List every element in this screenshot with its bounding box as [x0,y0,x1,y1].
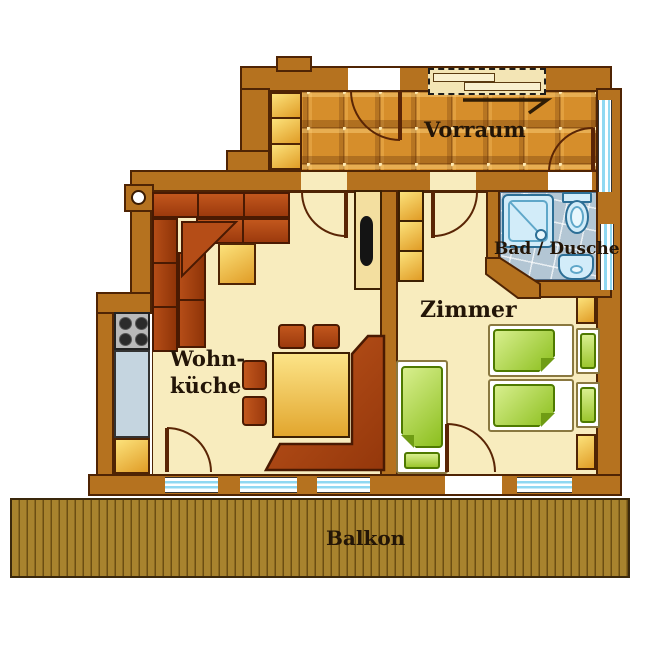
chair-left-1 [242,360,267,390]
duvet-2 [493,384,555,427]
stove-burners [116,314,148,348]
zimmer-label: Zimmer [420,297,517,323]
sofa-cushion [154,264,176,306]
duvet-fold [401,435,414,448]
pillow-1 [580,333,596,369]
sofa-back-top [152,192,290,218]
balcony-deck [10,498,630,578]
bed-head-cabinet-top [576,296,596,324]
sofa-cushion [180,254,204,299]
sofa-seat-left [178,252,206,348]
burner [119,317,132,330]
wall-vorraum-left [240,88,270,154]
bad-dusche-label: Bad / Dusche [494,239,620,259]
sofa-cushion [245,194,288,216]
wall-left-jog [96,292,152,314]
shelf-cell [272,119,300,142]
sofa-cushion [154,220,176,262]
sofa-back-left [152,218,178,352]
wardrobe-panel-left [433,73,495,82]
wall-mid-band [130,170,612,192]
wohnkueche-door-opening [301,172,347,190]
shelf-cell [272,94,300,117]
toilet-bowl [565,200,589,234]
sofa-cushion [198,220,242,242]
balcony-door-window-wohnkueche [165,477,218,493]
duvet-fold [541,413,555,427]
pillow-2 [580,387,596,423]
wohnkueche-label-line1: Wohn- [170,346,245,371]
sofa-cushion [180,301,204,346]
vorraum-shelf [270,92,302,170]
floorplan: Vorraum Bad / Dusche Zimmer Wohn- küche … [0,0,660,660]
tv [360,216,373,266]
bad-door-opening [548,172,592,190]
sink-basin [570,265,583,274]
shelf-cell [400,252,422,280]
chair-top-1 [278,324,306,349]
sofa-seat-top [196,218,290,244]
kitchen-counter [114,350,150,438]
duvet-1 [493,329,555,372]
toilet-bowl-inner [570,206,584,228]
wardrobe-panel-right [464,82,541,91]
kitchen-cabinet [114,438,150,474]
chair-left-2 [242,396,267,426]
stove [114,312,150,350]
balkon-label: Balkon [326,526,405,550]
window-bottom-1 [240,477,297,493]
shelf-cell [400,222,422,250]
zimmer-balcony-door-opening [445,476,502,494]
sofa-cushion [154,308,176,350]
sofa-cushion [199,194,242,216]
coffee-table [218,243,256,285]
duvet-fold [541,358,555,372]
chair-top-2 [312,324,340,349]
shower-inner [508,200,548,242]
window-bottom-3 [517,477,572,493]
single-bed-pillow [404,452,440,469]
burner [119,333,132,346]
burner [135,333,148,346]
shelf-cell [400,192,422,220]
bed-head-cabinet-bottom [576,434,596,470]
wardrobe-sliding [428,68,546,95]
column-circle [131,190,146,205]
sofa-cushion [244,220,288,242]
entrance-opening [348,68,400,90]
wall-left-lower [96,312,114,480]
window-right-vorraum [598,100,612,192]
burner [135,317,148,330]
zimmer-door-opening [430,172,476,190]
dining-table [272,352,350,438]
shelf-cell [272,145,300,168]
zimmer-shelf [398,190,424,282]
single-bed-duvet [401,366,443,448]
wall-top-bump [276,56,312,72]
wohnkueche-label-line2: küche [170,373,241,398]
vorraum-label: Vorraum [424,117,526,142]
sofa-cushion [154,194,197,216]
window-bottom-2 [317,477,370,493]
